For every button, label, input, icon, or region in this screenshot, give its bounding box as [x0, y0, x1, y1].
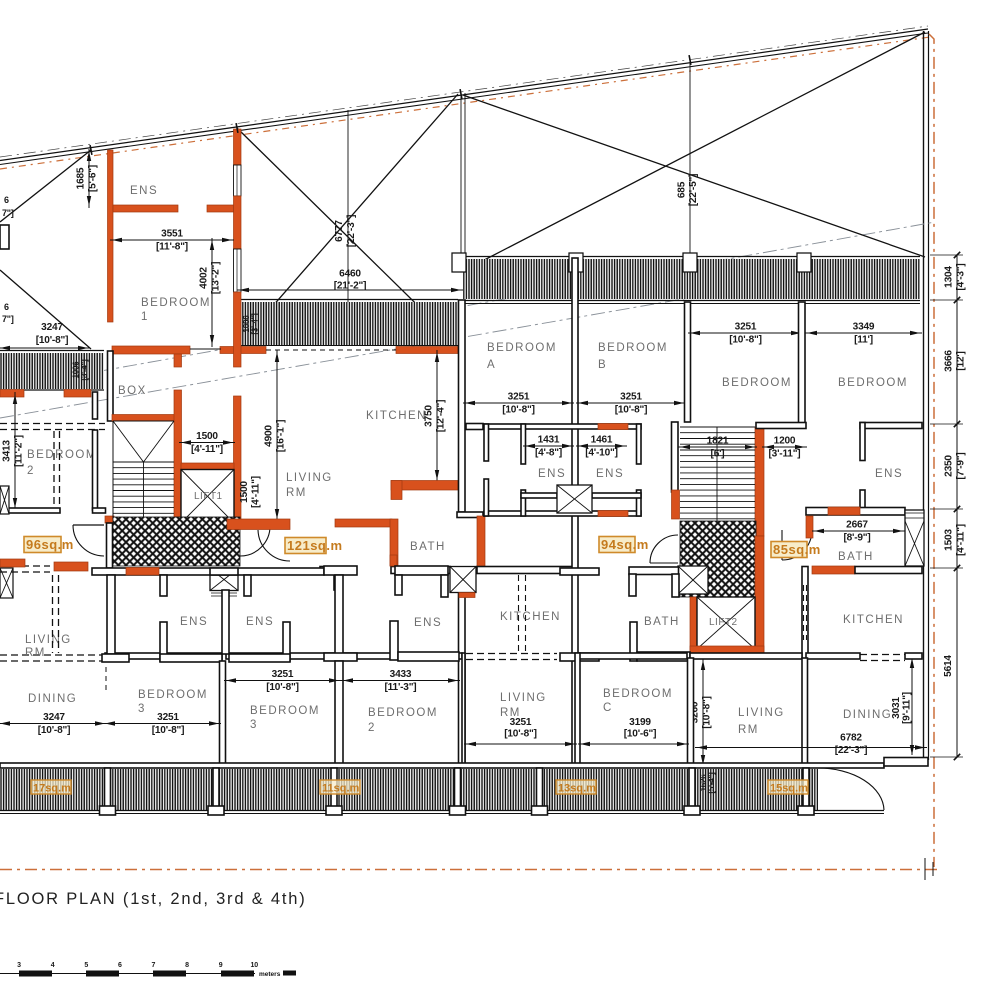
svg-text:[21'-2"]: [21'-2"] [334, 281, 367, 292]
svg-text:15sq.m: 15sq.m [770, 783, 808, 795]
svg-text:LIVING: LIVING [500, 692, 547, 704]
svg-text:DINING: DINING [843, 709, 892, 721]
svg-text:[10'-8"]: [10'-8"] [729, 335, 762, 346]
svg-text:[7'-9"]: [7'-9"] [956, 452, 967, 479]
svg-text:LIVING: LIVING [738, 707, 785, 719]
svg-text:[4'-11"]: [4'-11"] [191, 444, 223, 455]
svg-text:685: 685 [677, 181, 688, 198]
svg-text:3251: 3251 [510, 717, 532, 728]
svg-text:LIVING: LIVING [286, 472, 333, 484]
svg-text:6: 6 [4, 302, 9, 312]
svg-text:B: B [598, 359, 607, 371]
svg-text:[4'-11"]: [4'-11"] [956, 524, 967, 556]
svg-text:[12'-4"]: [12'-4"] [436, 400, 447, 433]
svg-text:4002: 4002 [199, 267, 210, 289]
svg-text:[4'-10"]: [4'-10"] [585, 448, 618, 459]
svg-text:meters: meters [259, 971, 281, 978]
svg-text:3251: 3251 [620, 392, 642, 403]
svg-text:RM: RM [286, 487, 307, 499]
svg-text:7: 7 [152, 962, 156, 969]
svg-text:9: 9 [219, 962, 223, 969]
svg-text:3551: 3551 [161, 229, 183, 240]
svg-text:1821: 1821 [707, 436, 729, 447]
svg-text:1500: 1500 [196, 431, 218, 442]
svg-text:4900: 4900 [264, 425, 275, 447]
svg-text:BATH: BATH [838, 551, 874, 563]
svg-text:BATH: BATH [410, 541, 446, 553]
svg-text:1304: 1304 [944, 266, 955, 288]
svg-text:[3'-4"]: [3'-4"] [80, 359, 89, 381]
svg-text:[10'-8"]: [10'-8"] [504, 729, 537, 740]
svg-text:1200: 1200 [774, 436, 796, 447]
svg-text:[10'-8"]: [10'-8"] [36, 335, 69, 346]
svg-text:7"]: 7"] [2, 314, 14, 324]
svg-text:3251: 3251 [508, 392, 530, 403]
svg-text:[4'-11"]: [4'-11"] [251, 476, 262, 508]
svg-text:BEDROOM: BEDROOM [138, 689, 208, 701]
svg-text:BEDROOM: BEDROOM [838, 377, 908, 389]
svg-text:[11'-3"]: [11'-3"] [385, 682, 417, 693]
svg-text:LIFT1: LIFT1 [194, 491, 223, 502]
svg-text:DINING: DINING [28, 693, 77, 705]
svg-text:LIVING: LIVING [25, 634, 72, 646]
svg-text:8: 8 [185, 962, 189, 969]
svg-text:[10'-6"]: [10'-6"] [624, 729, 657, 740]
svg-text:10: 10 [251, 962, 259, 969]
svg-text:[22'-3"]: [22'-3"] [346, 215, 357, 248]
svg-text:3750: 3750 [424, 405, 435, 427]
svg-text:RM: RM [738, 724, 759, 736]
svg-text:[5'-4"]: [5'-4"] [707, 772, 716, 794]
svg-text:3: 3 [17, 962, 21, 969]
svg-text:BEDROOM: BEDROOM [368, 707, 438, 719]
svg-text:7"]: 7"] [2, 208, 14, 218]
svg-text:5614: 5614 [943, 655, 954, 677]
svg-text:ENS: ENS [538, 468, 566, 480]
svg-text:[11'-2"]: [11'-2"] [14, 435, 25, 467]
svg-text:1461: 1461 [591, 435, 613, 446]
svg-text:3251: 3251 [272, 669, 294, 680]
svg-text:A: A [487, 359, 496, 371]
svg-text:ENS: ENS [414, 617, 442, 629]
svg-text:[13'-2"]: [13'-2"] [211, 262, 222, 295]
svg-text:3: 3 [138, 703, 146, 715]
svg-text:3413: 3413 [2, 440, 13, 462]
svg-text:3666: 3666 [944, 350, 955, 372]
svg-text:ENS: ENS [130, 185, 158, 197]
svg-text:3247: 3247 [43, 712, 65, 723]
svg-text:3247: 3247 [41, 322, 63, 333]
svg-text:17sq.m: 17sq.m [33, 783, 71, 795]
svg-text:KITCHEN: KITCHEN [843, 614, 904, 626]
svg-text:[10'-8"]: [10'-8"] [502, 405, 535, 416]
svg-text:2350: 2350 [944, 455, 955, 477]
svg-text:C: C [603, 702, 613, 714]
svg-text:3349: 3349 [853, 322, 875, 333]
svg-text:1500: 1500 [239, 481, 250, 503]
svg-text:FLOOR PLAN (1st, 2nd, 3rd: FLOOR PLAN (1st, 2nd, 3rd & 4th) [0, 890, 307, 908]
svg-text:BEDROOM: BEDROOM [603, 688, 673, 700]
svg-text:6777: 6777 [334, 220, 345, 242]
svg-text:KITCHEN: KITCHEN [500, 611, 561, 623]
svg-text:[3'-4"]: [3'-4"] [251, 313, 260, 335]
svg-text:RM: RM [25, 647, 46, 659]
svg-text:6782: 6782 [840, 733, 862, 744]
svg-text:4: 4 [51, 962, 55, 969]
svg-text:3031: 3031 [891, 697, 902, 719]
svg-text:[22'-3"]: [22'-3"] [835, 745, 868, 756]
svg-text:3: 3 [250, 719, 258, 731]
svg-text:BEDROOM: BEDROOM [250, 705, 320, 717]
svg-text:[16'-1"]: [16'-1"] [276, 420, 287, 453]
svg-text:[22'-5"]: [22'-5"] [688, 174, 699, 207]
svg-text:6460: 6460 [339, 269, 361, 280]
svg-text:[11'-8"]: [11'-8"] [156, 242, 188, 253]
svg-text:1503: 1503 [944, 529, 955, 551]
svg-text:5: 5 [84, 962, 88, 969]
svg-text:ENS: ENS [246, 616, 274, 628]
svg-text:[5'-6"]: [5'-6"] [88, 165, 99, 192]
svg-text:[10'-8"]: [10'-8"] [38, 725, 71, 736]
svg-text:ENS: ENS [180, 616, 208, 628]
svg-text:ENS: ENS [875, 468, 903, 480]
svg-text:[10'-8"]: [10'-8"] [702, 696, 713, 729]
svg-text:3433: 3433 [390, 669, 412, 680]
svg-text:[10'-8"]: [10'-8"] [266, 682, 299, 693]
svg-text:BEDROOM: BEDROOM [141, 297, 211, 309]
svg-text:KITCHEN: KITCHEN [366, 410, 427, 422]
svg-text:1685: 1685 [76, 167, 87, 189]
svg-text:2667: 2667 [846, 520, 868, 531]
svg-text:[4'-3"]: [4'-3"] [956, 263, 967, 290]
svg-text:[10'-8"]: [10'-8"] [152, 725, 185, 736]
svg-text:BEDROOM: BEDROOM [27, 449, 97, 461]
svg-text:3199: 3199 [629, 717, 651, 728]
svg-text:LIFT2: LIFT2 [709, 617, 738, 628]
svg-text:6: 6 [4, 195, 9, 205]
svg-text:[12']: [12'] [956, 351, 967, 370]
svg-text:[4'-8"]: [4'-8"] [535, 448, 562, 459]
svg-text:3251: 3251 [735, 322, 757, 333]
svg-text:2: 2 [27, 465, 35, 477]
svg-text:[9'-11"]: [9'-11"] [902, 692, 913, 724]
svg-text:11sq.m: 11sq.m [322, 783, 360, 795]
svg-text:96sq.m: 96sq.m [26, 537, 74, 552]
svg-text:[10'-8"]: [10'-8"] [615, 405, 648, 416]
svg-text:[11']: [11'] [854, 335, 873, 346]
svg-text:6: 6 [118, 962, 122, 969]
svg-text:13sq.m: 13sq.m [558, 783, 596, 795]
svg-text:[8'-9"]: [8'-9"] [843, 533, 870, 544]
svg-text:BEDROOM: BEDROOM [598, 342, 668, 354]
svg-text:BEDROOM: BEDROOM [722, 377, 792, 389]
svg-text:3251: 3251 [157, 712, 179, 723]
svg-text:85sq.m: 85sq.m [773, 542, 821, 557]
svg-text:1: 1 [141, 311, 149, 323]
svg-text:1431: 1431 [538, 435, 560, 446]
svg-text:[6']: [6'] [711, 449, 725, 460]
svg-text:BEDROOM: BEDROOM [487, 342, 557, 354]
svg-text:2: 2 [368, 722, 376, 734]
svg-text:121sq.m: 121sq.m [287, 538, 343, 553]
svg-text:94sq.m: 94sq.m [601, 537, 649, 552]
svg-text:ENS: ENS [596, 468, 624, 480]
svg-text:[3'-11"]: [3'-11"] [769, 449, 801, 460]
svg-text:BATH: BATH [644, 616, 680, 628]
svg-text:BOX: BOX [118, 385, 147, 397]
